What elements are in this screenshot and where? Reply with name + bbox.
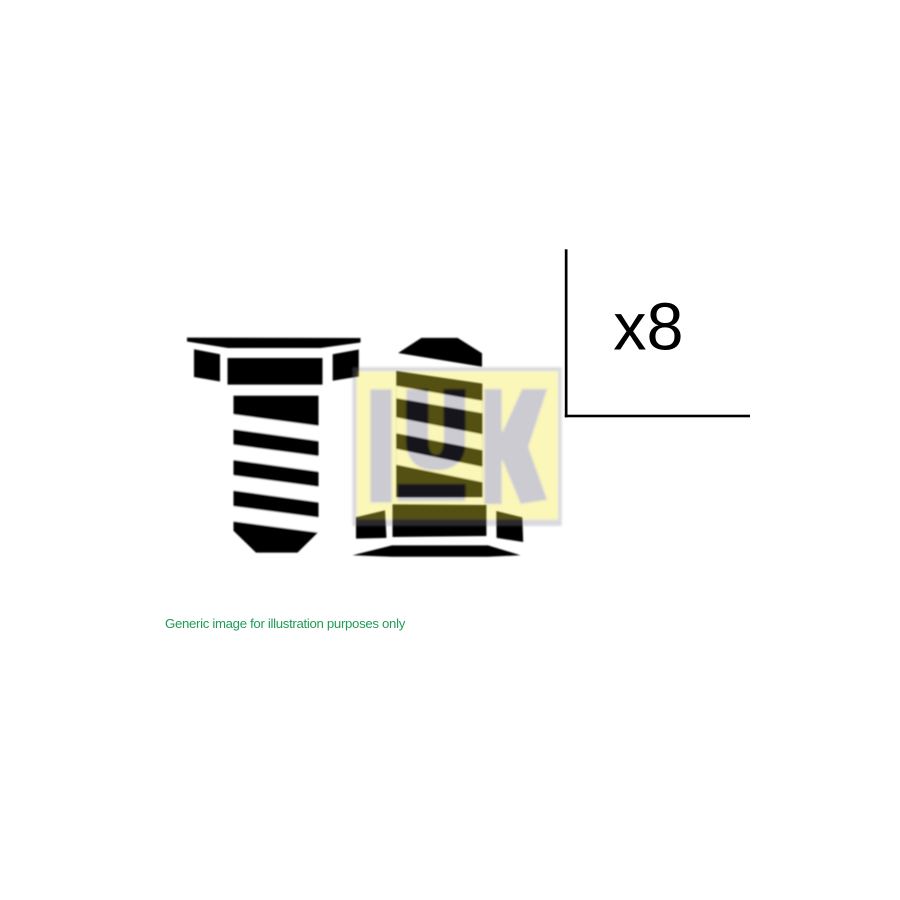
svg-text:x8: x8 <box>613 291 683 365</box>
svg-text:Generic image for illustration: Generic image for illustration purposes … <box>165 616 406 631</box>
